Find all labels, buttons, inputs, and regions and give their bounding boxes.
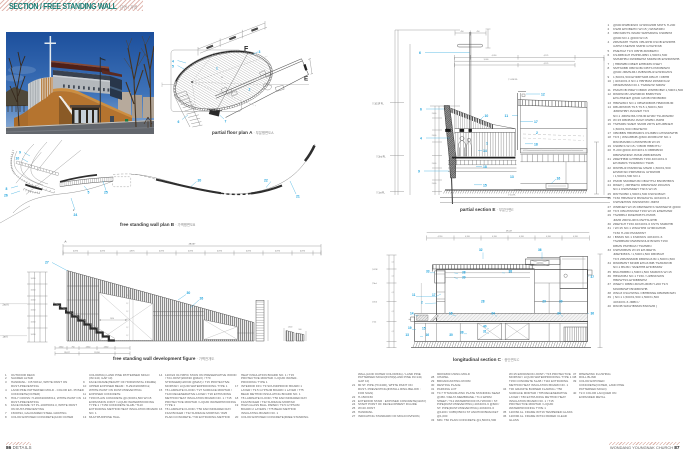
svg-text:▲: ▲ <box>73 209 75 212</box>
svg-text:4,2: 4,2 <box>392 276 394 278</box>
svg-text:3,450: 3,450 <box>31 322 36 324</box>
svg-text:8: 8 <box>6 187 8 191</box>
svg-text:4,875: 4,875 <box>246 251 252 253</box>
svg-text:4,125: 4,125 <box>544 55 549 57</box>
svg-text:7: 7 <box>225 120 227 124</box>
svg-text:▽2nd: ▽2nd <box>372 300 377 303</box>
svg-text:1,2: 1,2 <box>126 311 128 313</box>
svg-text:4,875: 4,875 <box>129 251 135 253</box>
svg-text:29: 29 <box>542 299 546 303</box>
svg-text:33: 33 <box>426 269 430 273</box>
svg-text:2,400: 2,400 <box>432 163 437 165</box>
svg-text:18: 18 <box>534 142 538 146</box>
svg-text:26: 26 <box>4 194 8 198</box>
svg-text:18: 18 <box>449 312 453 316</box>
svg-text:4: 4 <box>420 137 422 141</box>
svg-text:2,400: 2,400 <box>432 183 437 185</box>
svg-text:38: 38 <box>509 270 513 274</box>
svg-text:3,000: 3,000 <box>484 59 489 61</box>
svg-text:450: 450 <box>477 31 480 33</box>
svg-text:3: 3 <box>259 50 261 54</box>
svg-text:4,950: 4,950 <box>465 236 470 238</box>
svg-text:6: 6 <box>419 51 421 55</box>
svg-text:17: 17 <box>432 293 436 297</box>
svg-text:20: 20 <box>198 179 202 183</box>
svg-text:2,400: 2,400 <box>432 113 437 115</box>
svg-text:▽ 2nd FL: ▽ 2nd FL <box>376 156 386 159</box>
svg-text:2,400: 2,400 <box>432 135 437 137</box>
svg-text:4,875: 4,875 <box>188 251 194 253</box>
svg-text:4,2: 4,2 <box>392 331 394 333</box>
svg-text:▽1st: ▽1st <box>372 320 377 323</box>
svg-text:38: 38 <box>462 270 466 274</box>
svg-text:4,950: 4,950 <box>573 236 578 238</box>
svg-text:4,875: 4,875 <box>73 251 79 253</box>
svg-text:▲: ▲ <box>221 76 223 79</box>
svg-text:10: 10 <box>16 157 20 161</box>
svg-text:▽3rd: ▽3rd <box>372 282 376 285</box>
svg-text:25: 25 <box>104 191 108 195</box>
svg-text:4,875: 4,875 <box>275 251 281 253</box>
svg-text:28,017: 28,017 <box>64 352 70 354</box>
svg-text:24: 24 <box>74 213 78 217</box>
svg-text:14: 14 <box>483 149 487 153</box>
svg-text:3,450: 3,450 <box>31 334 36 336</box>
svg-text:18: 18 <box>483 165 487 169</box>
svg-text:3,450: 3,450 <box>31 310 36 312</box>
svg-text:15: 15 <box>483 183 487 187</box>
svg-text:27: 27 <box>45 261 49 265</box>
svg-text:39: 39 <box>462 276 466 280</box>
svg-text:48,567: 48,567 <box>189 244 196 246</box>
svg-text:36: 36 <box>591 311 595 315</box>
svg-text:2: 2 <box>249 88 251 92</box>
svg-text:4,950: 4,950 <box>438 236 443 238</box>
svg-text:1: 1 <box>486 142 488 146</box>
svg-text:21: 21 <box>296 195 300 199</box>
svg-text:4,2: 4,2 <box>392 311 394 313</box>
svg-text:1,2: 1,2 <box>126 327 128 329</box>
svg-text:2nd fl.: 2nd fl. <box>3 304 10 307</box>
svg-text:4,125: 4,125 <box>544 63 549 65</box>
svg-text:9: 9 <box>19 151 21 155</box>
svg-text:10: 10 <box>485 114 489 118</box>
svg-text:14: 14 <box>410 311 414 315</box>
svg-text:31: 31 <box>483 329 487 333</box>
svg-text:34: 34 <box>557 311 561 315</box>
svg-text:30: 30 <box>187 291 191 295</box>
svg-text:17: 17 <box>534 120 538 124</box>
svg-text:2: 2 <box>421 300 423 304</box>
svg-text:16: 16 <box>426 333 430 337</box>
svg-text:15: 15 <box>422 327 426 331</box>
svg-text:▽ 4.5F FL: ▽ 4.5F FL <box>508 78 519 81</box>
svg-text:2,850: 2,850 <box>86 346 91 348</box>
svg-text:13: 13 <box>405 333 409 337</box>
svg-text:▽ 1st FL: ▽ 1st FL <box>508 194 517 197</box>
svg-text:30: 30 <box>559 299 563 303</box>
svg-text:4,950: 4,950 <box>546 236 551 238</box>
svg-text:40: 40 <box>483 325 487 329</box>
svg-text:▽ 1st FL: ▽ 1st FL <box>376 192 386 195</box>
svg-text:2,850: 2,850 <box>59 346 64 348</box>
svg-text:38: 38 <box>460 330 464 334</box>
svg-text:1,2: 1,2 <box>126 303 128 305</box>
svg-text:1,800: 1,800 <box>288 327 293 329</box>
svg-text:26: 26 <box>200 297 204 301</box>
svg-text:30: 30 <box>449 333 453 337</box>
svg-text:4,950: 4,950 <box>492 236 497 238</box>
svg-text:4: 4 <box>172 60 174 64</box>
svg-text:3,450: 3,450 <box>31 290 36 292</box>
svg-text:2,850: 2,850 <box>104 346 109 348</box>
svg-text:4,2: 4,2 <box>392 262 394 264</box>
svg-text:11: 11 <box>505 114 509 118</box>
svg-text:1,2: 1,2 <box>126 295 128 297</box>
svg-text:36: 36 <box>538 248 542 252</box>
svg-text:450: 450 <box>461 31 464 33</box>
svg-text:16: 16 <box>557 177 561 181</box>
svg-text:22: 22 <box>264 179 268 183</box>
svg-text:29,547: 29,547 <box>506 230 513 232</box>
svg-text:20,550: 20,550 <box>94 352 100 354</box>
svg-text:1st fl.: 1st fl. <box>3 336 9 339</box>
svg-text:750: 750 <box>72 346 75 348</box>
svg-text:▽ 10.5F FL: ▽ 10.5F FL <box>372 103 384 106</box>
svg-text:4,875: 4,875 <box>159 251 165 253</box>
svg-text:11: 11 <box>412 293 416 297</box>
svg-text:34: 34 <box>491 311 495 315</box>
svg-text:4,2: 4,2 <box>392 292 394 294</box>
svg-text:12: 12 <box>541 93 545 97</box>
svg-text:900: 900 <box>299 329 302 331</box>
svg-text:1,2: 1,2 <box>126 335 128 337</box>
svg-text:19: 19 <box>408 326 412 330</box>
svg-text:5: 5 <box>88 191 90 195</box>
svg-text:3,450: 3,450 <box>31 300 36 302</box>
svg-text:9: 9 <box>418 170 420 174</box>
svg-text:5: 5 <box>172 65 174 69</box>
svg-text:2: 2 <box>536 131 538 135</box>
svg-text:3,450: 3,450 <box>31 278 36 280</box>
svg-text:1: 1 <box>216 67 218 71</box>
svg-text:▽4.5F: ▽4.5F <box>372 268 378 271</box>
svg-text:2,850: 2,850 <box>110 318 114 320</box>
svg-text:6: 6 <box>420 108 422 112</box>
svg-text:28: 28 <box>481 299 485 303</box>
svg-text:4,950: 4,950 <box>519 236 524 238</box>
svg-text:F: F <box>244 46 249 53</box>
svg-text:32: 32 <box>479 248 483 252</box>
svg-text:37: 37 <box>591 275 595 279</box>
svg-text:4,875: 4,875 <box>217 251 223 253</box>
svg-text:6: 6 <box>178 120 180 124</box>
svg-text:4,050: 4,050 <box>492 55 497 57</box>
svg-text:4,875: 4,875 <box>100 251 106 253</box>
svg-text:4,875: 4,875 <box>300 251 306 253</box>
svg-text:13: 13 <box>510 175 514 179</box>
svg-text:↓A: ↓A <box>63 240 66 244</box>
